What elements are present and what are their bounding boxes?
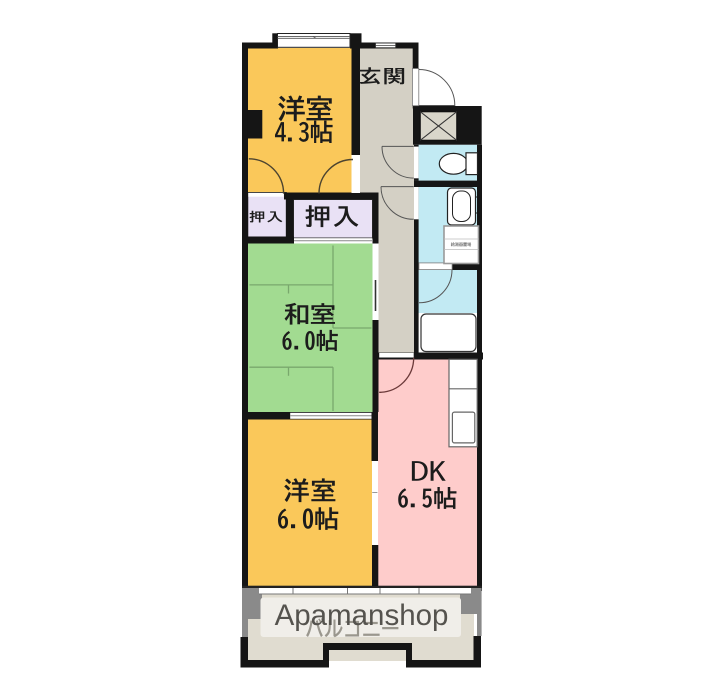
svg-text:Apamanshop: Apamanshop [275,599,449,632]
